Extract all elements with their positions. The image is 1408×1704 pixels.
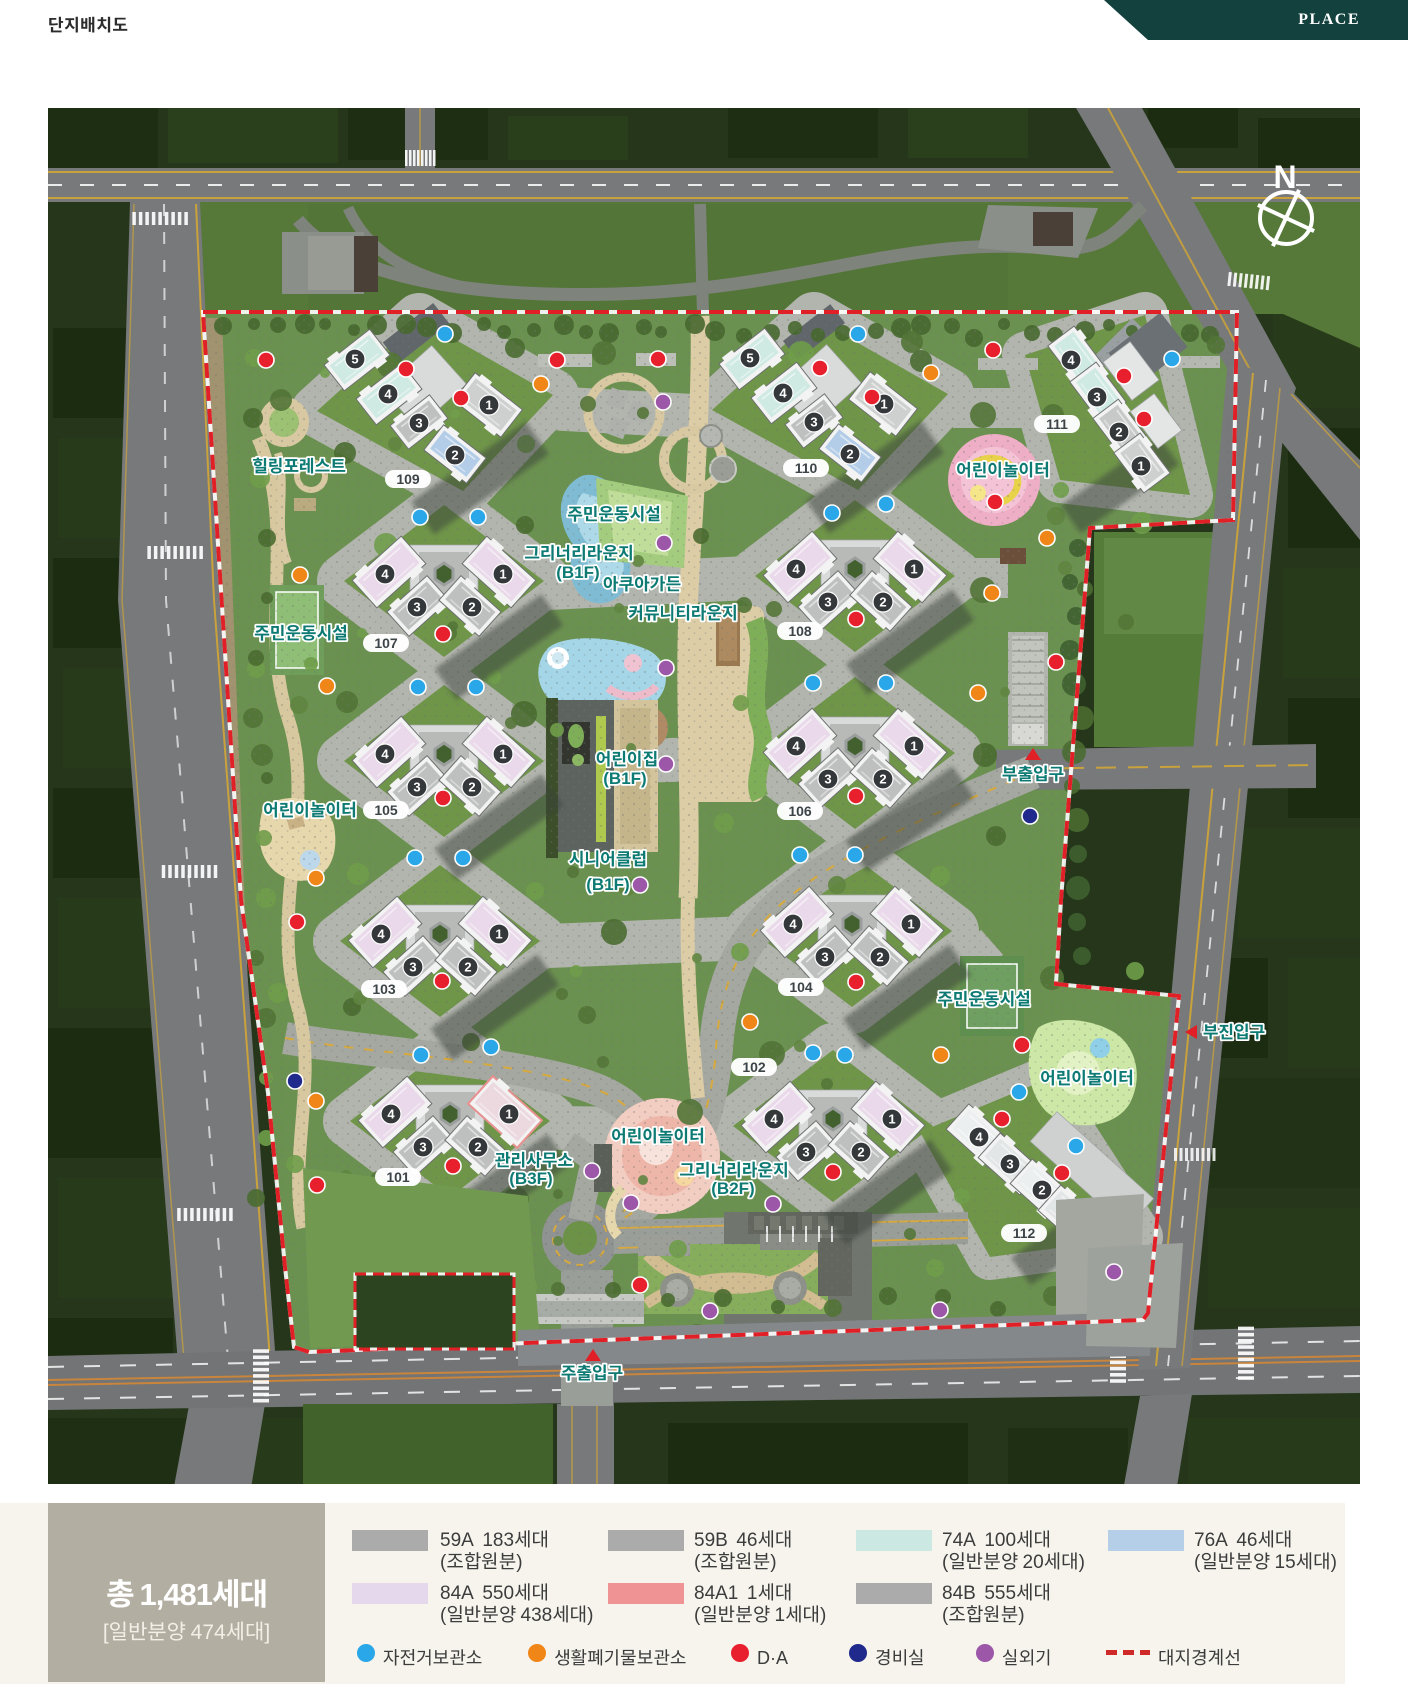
svg-text:어린이놀이터: 어린이놀이터: [263, 796, 357, 821]
svg-text:4: 4: [381, 747, 389, 762]
svg-text:4: 4: [792, 562, 800, 577]
svg-text:4: 4: [770, 1112, 778, 1127]
svg-text:1: 1: [499, 567, 506, 582]
svg-text:109: 109: [396, 471, 420, 487]
svg-text:3: 3: [802, 1145, 809, 1160]
svg-text:110: 110: [795, 460, 818, 476]
svg-text:112: 112: [1013, 1225, 1036, 1241]
svg-text:(B1F): (B1F): [586, 870, 629, 895]
svg-text:(B1F): (B1F): [603, 764, 646, 789]
svg-text:(B2F): (B2F): [711, 1174, 754, 1199]
svg-text:1: 1: [485, 398, 492, 413]
svg-text:부진입구: 부진입구: [1203, 1018, 1266, 1043]
svg-text:2: 2: [464, 960, 471, 975]
svg-text:1: 1: [910, 562, 917, 577]
svg-text:2: 2: [857, 1145, 864, 1160]
svg-text:2: 2: [468, 600, 475, 615]
svg-text:주민운동시설: 주민운동시설: [254, 619, 348, 644]
svg-text:2: 2: [474, 1140, 481, 1155]
svg-text:3: 3: [413, 600, 420, 615]
svg-text:3: 3: [409, 960, 416, 975]
svg-text:1: 1: [499, 747, 506, 762]
svg-text:104: 104: [789, 979, 813, 995]
svg-text:1: 1: [907, 917, 914, 932]
svg-text:5: 5: [351, 352, 358, 367]
svg-text:1: 1: [910, 739, 917, 754]
svg-text:3: 3: [1006, 1157, 1013, 1172]
svg-text:105: 105: [374, 802, 398, 818]
svg-text:103: 103: [372, 981, 396, 997]
svg-text:4: 4: [377, 927, 385, 942]
svg-text:111: 111: [1046, 416, 1068, 432]
svg-text:4: 4: [975, 1130, 983, 1145]
svg-text:3: 3: [821, 950, 828, 965]
svg-text:2: 2: [468, 780, 475, 795]
svg-text:4: 4: [792, 739, 800, 754]
svg-text:부출입구: 부출입구: [1002, 760, 1065, 785]
svg-text:4: 4: [789, 917, 797, 932]
svg-text:102: 102: [742, 1059, 766, 1075]
svg-text:N: N: [1273, 159, 1296, 195]
svg-text:2: 2: [1038, 1183, 1045, 1198]
svg-text:3: 3: [413, 780, 420, 795]
svg-text:1: 1: [495, 927, 502, 942]
svg-text:107: 107: [374, 635, 398, 651]
svg-text:힐링포레스트: 힐링포레스트: [252, 452, 346, 477]
svg-text:108: 108: [788, 623, 812, 639]
svg-text:1: 1: [880, 397, 887, 412]
svg-text:5: 5: [746, 351, 753, 366]
svg-text:2: 2: [1115, 425, 1122, 440]
svg-text:어린이놀이터: 어린이놀이터: [956, 456, 1050, 481]
svg-text:2: 2: [846, 447, 853, 462]
svg-text:2: 2: [876, 950, 883, 965]
svg-text:2: 2: [879, 595, 886, 610]
svg-text:4: 4: [779, 386, 787, 401]
svg-text:(B1F): (B1F): [556, 558, 599, 583]
svg-text:3: 3: [419, 1140, 426, 1155]
svg-text:4: 4: [1067, 353, 1075, 368]
svg-text:커뮤니티라운지: 커뮤니티라운지: [628, 599, 737, 624]
svg-text:3: 3: [1093, 390, 1100, 405]
svg-text:1: 1: [505, 1107, 512, 1122]
svg-text:3: 3: [824, 595, 831, 610]
svg-text:2: 2: [451, 448, 458, 463]
svg-text:아쿠아가든: 아쿠아가든: [603, 570, 681, 595]
svg-text:4: 4: [381, 567, 389, 582]
svg-text:3: 3: [824, 772, 831, 787]
svg-text:101: 101: [386, 1169, 410, 1185]
svg-text:2: 2: [879, 772, 886, 787]
svg-text:주민운동시설: 주민운동시설: [567, 500, 661, 525]
svg-text:106: 106: [788, 803, 812, 819]
svg-text:1: 1: [1137, 459, 1144, 474]
svg-text:주출입구: 주출입구: [561, 1359, 624, 1384]
svg-text:주민운동시설: 주민운동시설: [937, 985, 1031, 1010]
svg-text:시니어클럽: 시니어클럽: [569, 845, 647, 870]
svg-text:3: 3: [415, 416, 422, 431]
svg-text:4: 4: [384, 387, 392, 402]
svg-text:어린이놀이터: 어린이놀이터: [611, 1122, 705, 1147]
svg-text:(B3F): (B3F): [509, 1164, 552, 1189]
svg-text:4: 4: [387, 1107, 395, 1122]
svg-text:1: 1: [888, 1112, 895, 1127]
svg-text:어린이놀이터: 어린이놀이터: [1040, 1064, 1134, 1089]
svg-text:3: 3: [810, 415, 817, 430]
